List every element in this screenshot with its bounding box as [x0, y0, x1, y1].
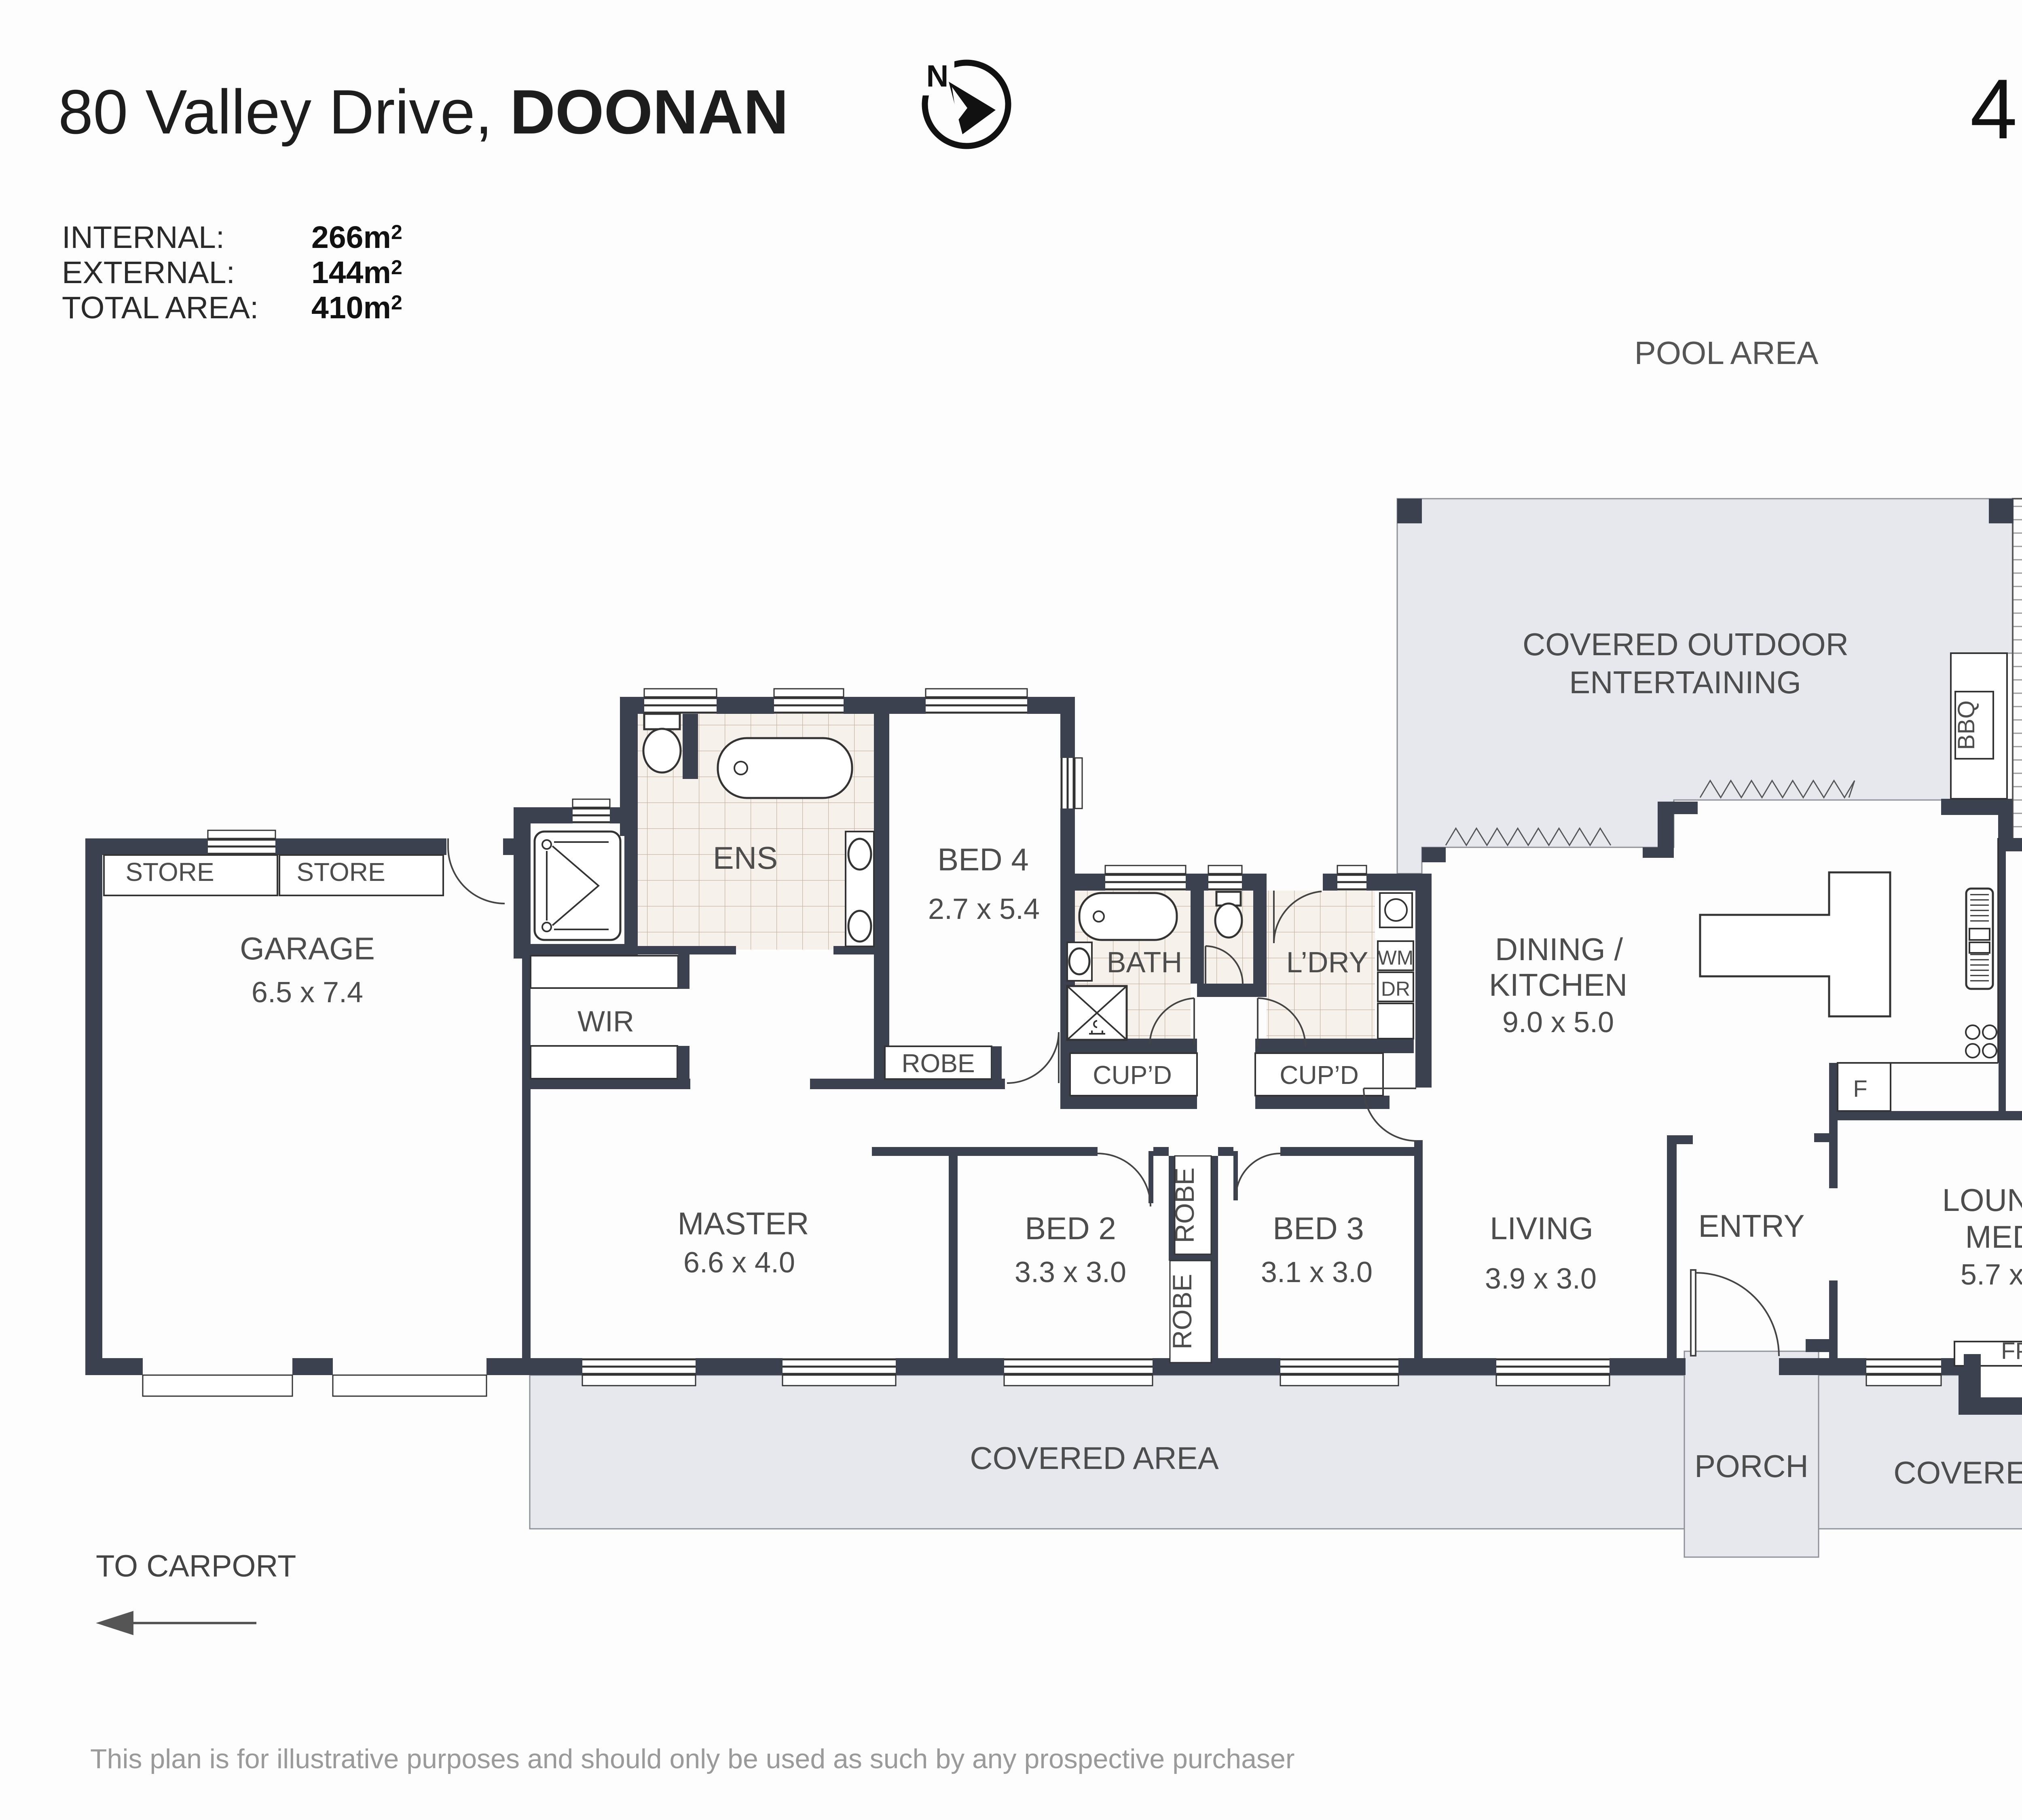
svg-text:2.7 x 5.4: 2.7 x 5.4 [928, 893, 1040, 925]
svg-text:CUP’D: CUP’D [1093, 1060, 1172, 1090]
svg-text:INTERNAL:: INTERNAL: [62, 220, 224, 255]
svg-text:BED 3: BED 3 [1273, 1211, 1364, 1246]
svg-text:POOL AREA: POOL AREA [1635, 335, 1819, 371]
svg-text:ENTERTAINING: ENTERTAINING [1569, 665, 1801, 700]
svg-text:KITCHEN: KITCHEN [1489, 967, 1627, 1003]
svg-text:COVERED AREA: COVERED AREA [1893, 1455, 2022, 1490]
svg-text:3.1 x 3.0: 3.1 x 3.0 [1261, 1256, 1373, 1289]
svg-text:4: 4 [1970, 61, 2018, 157]
svg-text:BED 4: BED 4 [937, 842, 1028, 877]
svg-text:ROBE: ROBE [901, 1049, 975, 1078]
svg-text:ENTRY: ENTRY [1698, 1208, 1805, 1244]
svg-text:WM: WM [1378, 946, 1414, 969]
svg-text:GARAGE: GARAGE [240, 931, 375, 966]
svg-text:TO CARPORT: TO CARPORT [96, 1549, 296, 1583]
svg-text:LOUNGE /: LOUNGE / [1942, 1182, 2022, 1218]
svg-text:9.0 x 5.0: 9.0 x 5.0 [1502, 1006, 1614, 1039]
svg-text:CUP’D: CUP’D [1280, 1060, 1359, 1090]
svg-text:STORE: STORE [125, 857, 214, 887]
svg-text:5.7 x 3.6: 5.7 x 3.6 [1961, 1259, 2022, 1291]
svg-text:BBQ: BBQ [1953, 700, 1980, 750]
svg-text:ENS: ENS [713, 840, 778, 876]
svg-text:MASTER: MASTER [677, 1206, 809, 1241]
svg-text:N: N [926, 59, 949, 93]
svg-text:ROBE: ROBE [1167, 1274, 1197, 1349]
svg-text:EXTERNAL:: EXTERNAL: [62, 255, 235, 290]
svg-text:L’DRY: L’DRY [1286, 946, 1368, 979]
svg-text:80 Valley Drive, DOONAN: 80 Valley Drive, DOONAN [58, 77, 789, 147]
svg-text:TOTAL AREA:: TOTAL AREA: [62, 290, 258, 325]
svg-text:DINING /: DINING / [1495, 931, 1623, 967]
svg-text:WIR: WIR [577, 1005, 634, 1038]
svg-text:266m2: 266m2 [311, 220, 402, 255]
svg-text:COVERED OUTDOOR: COVERED OUTDOOR [1523, 626, 1849, 662]
svg-text:ROBE: ROBE [1170, 1167, 1199, 1243]
svg-text:BATH: BATH [1107, 946, 1182, 979]
svg-text:3.3 x 3.0: 3.3 x 3.0 [1015, 1256, 1126, 1289]
svg-text:FP: FP [2001, 1338, 2022, 1364]
svg-text:410m2: 410m2 [311, 290, 402, 325]
svg-text:6.6 x 4.0: 6.6 x 4.0 [683, 1246, 795, 1279]
svg-text:MEDIA: MEDIA [1965, 1219, 2022, 1255]
svg-text:COVERED AREA: COVERED AREA [970, 1440, 1219, 1476]
svg-text:3.9 x 3.0: 3.9 x 3.0 [1485, 1263, 1597, 1295]
svg-text:144m2: 144m2 [311, 255, 402, 290]
svg-text:BED 2: BED 2 [1025, 1211, 1116, 1246]
svg-text:6.5 x 7.4: 6.5 x 7.4 [252, 976, 363, 1009]
svg-text:PORCH: PORCH [1694, 1448, 1808, 1484]
svg-text:STORE: STORE [296, 857, 385, 887]
svg-text:LIVING: LIVING [1490, 1211, 1593, 1246]
svg-text:F: F [1853, 1076, 1867, 1102]
svg-text:DR: DR [1381, 978, 1410, 1000]
svg-text:This plan is for illustrative: This plan is for illustrative purposes a… [90, 1744, 1295, 1774]
